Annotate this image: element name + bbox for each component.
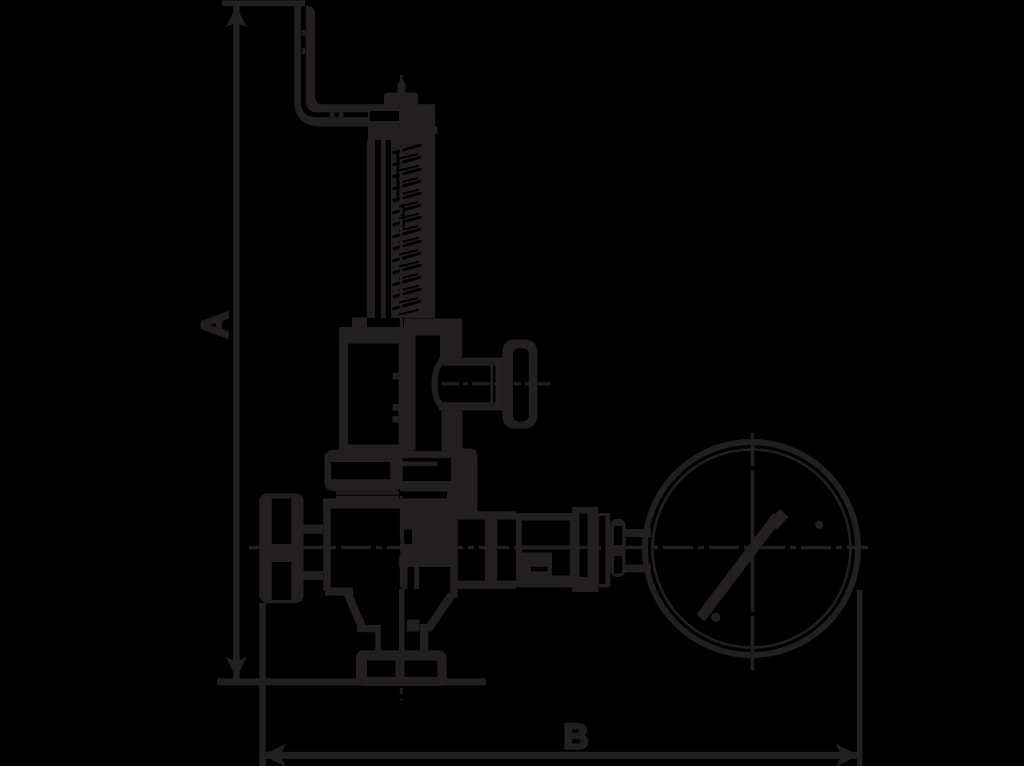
svg-text:B: B [563,718,588,757]
svg-text:A: A [195,312,236,339]
